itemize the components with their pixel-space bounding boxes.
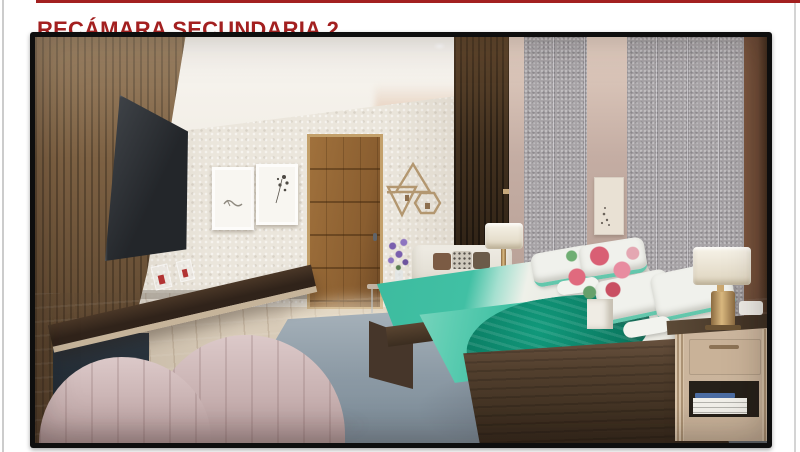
title-rule xyxy=(36,0,800,3)
art-frame-right xyxy=(256,164,298,225)
telephone xyxy=(739,301,763,315)
lamp-large-foot xyxy=(705,325,741,330)
page-left-edge xyxy=(2,0,4,452)
decor-red-accent-2 xyxy=(182,269,189,278)
page-right-edge xyxy=(794,0,796,452)
pink-flower-bouquet xyxy=(559,235,649,305)
glass-table-leg-1 xyxy=(371,289,373,313)
art-sketch-floral xyxy=(259,167,295,222)
recessed-light xyxy=(433,42,446,50)
sofa-cushion-brown xyxy=(433,253,451,270)
slide-page: RECÁMARA SECUNDARIA 2 xyxy=(0,0,800,452)
nightstand-open-shelf xyxy=(689,381,759,417)
art-sketch-squiggle xyxy=(215,170,251,227)
decor-red-accent xyxy=(158,274,166,284)
stacked-books xyxy=(693,398,747,414)
lavender-flowers xyxy=(383,237,415,273)
wooden-door xyxy=(310,137,380,307)
sofa-cushion-dark xyxy=(473,252,490,269)
bedroom-render xyxy=(35,37,767,443)
art-frame-left xyxy=(212,167,254,230)
table-lamp-large xyxy=(693,247,751,285)
mini-print-dots xyxy=(595,178,623,234)
sofa-cushion-patterned xyxy=(452,251,472,269)
nightstand-fluted-left xyxy=(675,333,684,441)
table-lamp-small xyxy=(485,223,523,249)
door-handle xyxy=(373,233,377,241)
geometric-wood-wall-decor xyxy=(385,159,443,225)
bedroom-render-frame xyxy=(30,32,772,448)
drawer-handle xyxy=(709,345,739,349)
botanical-mini-print xyxy=(594,177,624,235)
nightstand-fluted-right xyxy=(762,329,767,441)
lamp-large-base xyxy=(711,291,735,327)
